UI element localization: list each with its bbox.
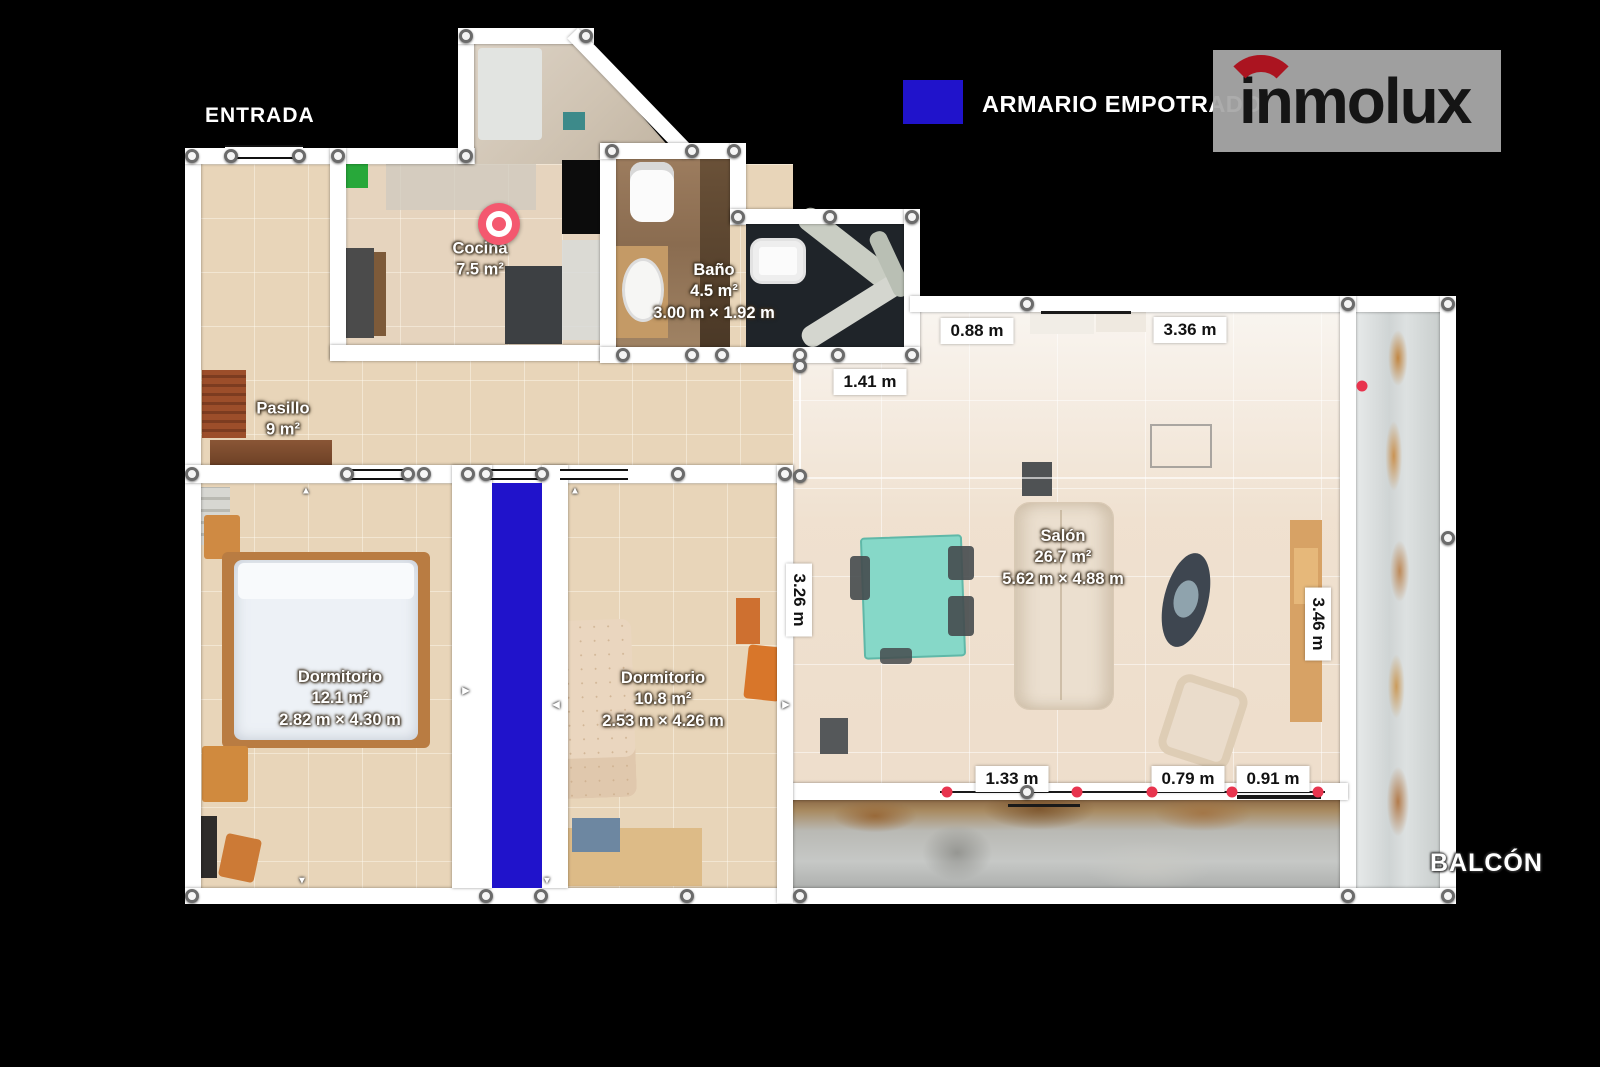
vertex-handle[interactable] xyxy=(793,889,807,903)
kitchen-wood-strip xyxy=(374,252,386,336)
room-label-dormitorio2: Dormitorio 10.8 m² 2.53 m × 4.26 m xyxy=(602,668,724,732)
wall-kitchen-bottom xyxy=(330,345,616,361)
vertex-handle[interactable] xyxy=(579,29,593,43)
vertex-handle[interactable] xyxy=(1020,785,1034,799)
toilet xyxy=(630,162,674,222)
nightstand-bottom xyxy=(202,746,248,802)
kitchen-counter-top xyxy=(386,164,536,210)
desk-object xyxy=(572,818,620,852)
kitchen-appliance xyxy=(505,266,562,344)
room-area: 9 m² xyxy=(256,420,309,441)
vertex-handle[interactable] xyxy=(680,889,694,903)
vertex-handle[interactable] xyxy=(185,889,199,903)
dining-chair-1 xyxy=(850,556,870,600)
wall-armario-right xyxy=(542,465,568,888)
red-point-marker[interactable] xyxy=(1313,787,1324,798)
vertex-handle[interactable] xyxy=(793,469,807,483)
vertex-handle[interactable] xyxy=(685,348,699,362)
wall-balcony-inner xyxy=(1340,296,1356,904)
door-swing-marker: ▲ xyxy=(570,486,580,497)
terrace-floor xyxy=(793,800,1340,888)
vertex-handle[interactable] xyxy=(331,149,345,163)
room-area: 26.7 m² xyxy=(1002,547,1124,568)
hall-wardrobe xyxy=(202,370,246,438)
wall-bath-right xyxy=(904,209,920,363)
vertex-handle[interactable] xyxy=(401,467,415,481)
dining-chair-2 xyxy=(948,546,974,580)
panorama-view-marker-core xyxy=(492,217,506,231)
speaker-box xyxy=(1022,462,1052,496)
dorm1-door[interactable] xyxy=(350,469,407,480)
door-swing-marker: ▼ xyxy=(297,876,307,887)
room-name: Baño xyxy=(653,260,775,281)
vertex-handle[interactable] xyxy=(731,210,745,224)
kitchen-sink-teal xyxy=(563,112,585,130)
room-label-salon: Salón 26.7 m² 5.62 m × 4.88 m xyxy=(1002,526,1124,590)
wall-bottom-outer xyxy=(185,888,1456,904)
room-dimensions: 2.82 m × 4.30 m xyxy=(279,710,401,731)
room-dimensions: 5.62 m × 4.88 m xyxy=(1002,569,1124,590)
measure-line-bottom-1 xyxy=(1008,804,1080,807)
entrance-label: ENTRADA xyxy=(205,104,315,128)
inmolux-logo: inmolux xyxy=(1213,50,1501,152)
wall-arrow-marker: ▶ xyxy=(782,700,790,711)
side-table-outline xyxy=(1150,424,1212,468)
wall-left-outer xyxy=(185,148,201,904)
vertex-handle[interactable] xyxy=(224,149,238,163)
wall-aseo-top xyxy=(600,143,746,159)
fridge xyxy=(478,48,542,140)
wall-arrow-marker: ▶ xyxy=(462,686,470,697)
vertex-handle[interactable] xyxy=(534,889,548,903)
vertex-handle[interactable] xyxy=(1020,297,1034,311)
vertex-handle[interactable] xyxy=(1341,889,1355,903)
dining-chair-4 xyxy=(880,648,912,664)
vertex-handle[interactable] xyxy=(1341,297,1355,311)
measure-salon-left-vertical: 3.26 m xyxy=(786,564,812,637)
vertex-handle[interactable] xyxy=(292,149,306,163)
room-dimensions: 2.53 m × 4.26 m xyxy=(602,711,724,732)
room-area: 12.1 m² xyxy=(279,688,401,709)
measure-salon-right-vertical: 3.46 m xyxy=(1305,588,1331,661)
vertex-handle[interactable] xyxy=(616,348,630,362)
orange-shelf xyxy=(736,598,760,644)
room-dimensions: 3.00 m × 1.92 m xyxy=(653,303,775,324)
vertex-handle[interactable] xyxy=(459,29,473,43)
room-name: Pasillo xyxy=(256,399,309,420)
logo-arc-icon xyxy=(1222,55,1300,133)
measure-salon-top-right: 3.36 m xyxy=(1154,317,1227,343)
wall-cabinet-2 xyxy=(1096,312,1146,332)
vertex-handle[interactable] xyxy=(905,210,919,224)
door-swing-marker: ▼ xyxy=(542,876,552,887)
kitchen-counter-right xyxy=(562,240,600,340)
vertex-handle[interactable] xyxy=(479,467,493,481)
floor-item-dark xyxy=(820,718,848,754)
red-point-marker[interactable] xyxy=(1227,787,1238,798)
vertex-handle[interactable] xyxy=(1441,531,1455,545)
room-name: Dormitorio xyxy=(602,668,724,689)
room-name: Salón xyxy=(1002,526,1124,547)
salon-pasillo-divider-line xyxy=(799,366,801,476)
vertex-handle[interactable] xyxy=(185,149,199,163)
vertex-handle[interactable] xyxy=(461,467,475,481)
measure-line-bottom-2 xyxy=(1237,795,1321,799)
measure-line-top xyxy=(1041,311,1131,314)
vertex-handle[interactable] xyxy=(793,359,807,373)
measure-banio-bottom: 1.41 m xyxy=(834,369,907,395)
vertex-handle[interactable] xyxy=(831,348,845,362)
wall-armario-left xyxy=(452,465,492,888)
room-area: 4.5 m² xyxy=(653,281,775,302)
kitchen-doorway-gap xyxy=(562,160,600,234)
red-point-marker[interactable] xyxy=(1072,787,1083,798)
wall-bath-bottom xyxy=(600,347,920,363)
wall-cabinet-1 xyxy=(1030,312,1094,334)
vertex-handle[interactable] xyxy=(535,467,549,481)
room-label-dormitorio1: Dormitorio 12.1 m² 2.82 m × 4.30 m xyxy=(279,667,401,731)
room-label-banio: Baño 4.5 m² 3.00 m × 1.92 m xyxy=(653,260,775,324)
vertex-handle[interactable] xyxy=(1441,889,1455,903)
wall-dorm2-salon xyxy=(777,465,793,903)
measure-salon-bottom-right: 0.91 m xyxy=(1237,766,1310,792)
door-swing-marker: ▲ xyxy=(301,486,311,497)
red-point-marker[interactable] xyxy=(942,787,953,798)
wall-arrow-marker: ◀ xyxy=(552,700,560,711)
measure-salon-bottom-left: 1.33 m xyxy=(976,766,1049,792)
panorama-view-marker-ring xyxy=(486,211,512,237)
vertex-handle[interactable] xyxy=(1441,297,1455,311)
salon-tile-line xyxy=(793,477,1340,479)
vertex-handle[interactable] xyxy=(185,467,199,481)
wall-right-outer xyxy=(1440,296,1456,904)
dorm2-door[interactable] xyxy=(560,469,628,480)
vertex-handle[interactable] xyxy=(340,467,354,481)
wall-salon-top xyxy=(910,296,1456,312)
vertex-handle[interactable] xyxy=(605,144,619,158)
balcony-side-floor xyxy=(1356,312,1440,888)
vertex-handle[interactable] xyxy=(459,149,473,163)
vertex-handle[interactable] xyxy=(685,144,699,158)
floorplan-canvas: ▲ ▲ ▼ ▼ ▶ ◀ ▶ Cocina 7.5 m² Baño 4.5 m² … xyxy=(0,0,1600,1067)
room-area: 7.5 m² xyxy=(452,260,507,281)
vertex-handle[interactable] xyxy=(417,467,431,481)
room-name: Dormitorio xyxy=(279,667,401,688)
room-label-pasillo: Pasillo 9 m² xyxy=(256,399,309,442)
armario-empotrado[interactable] xyxy=(492,483,542,888)
wall-kitchen-upper-left xyxy=(458,28,474,164)
balcony-label: BALCÓN xyxy=(1430,849,1543,878)
panorama-view-marker[interactable] xyxy=(478,203,520,245)
measure-salon-bottom-mid: 0.79 m xyxy=(1152,766,1225,792)
vertex-handle[interactable] xyxy=(715,348,729,362)
measure-salon-top-left: 0.88 m xyxy=(941,318,1014,344)
legend-armario-swatch xyxy=(903,80,963,124)
red-point-marker[interactable] xyxy=(1357,381,1368,392)
wall-kitchen-aseo-divider xyxy=(600,143,616,361)
dining-chair-3 xyxy=(948,596,974,636)
vertex-handle[interactable] xyxy=(778,467,792,481)
vertex-handle[interactable] xyxy=(905,348,919,362)
bed-pillow xyxy=(238,563,414,599)
vertex-handle[interactable] xyxy=(823,210,837,224)
vertex-handle[interactable] xyxy=(479,889,493,903)
room-area: 10.8 m² xyxy=(602,689,724,710)
kitchen-counter-left xyxy=(346,248,374,338)
wall-kitchen-left xyxy=(330,148,346,360)
red-point-marker[interactable] xyxy=(1147,787,1158,798)
hall-dresser xyxy=(210,440,332,467)
vertex-handle[interactable] xyxy=(671,467,685,481)
vertex-handle[interactable] xyxy=(727,144,741,158)
